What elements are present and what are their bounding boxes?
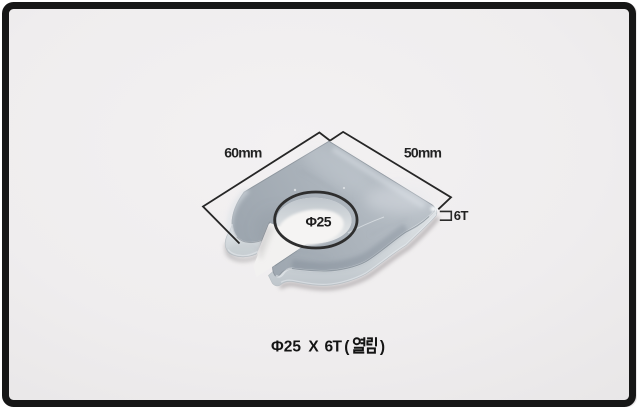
svg-text:Φ25: Φ25 <box>271 339 301 356</box>
svg-text:(: ( <box>344 339 350 356</box>
svg-text:6T: 6T <box>454 208 469 223</box>
svg-text:): ) <box>380 339 385 356</box>
svg-text:6T: 6T <box>325 339 343 356</box>
svg-text:X: X <box>308 339 319 356</box>
svg-text:60mm: 60mm <box>224 144 262 160</box>
svg-text:Φ25: Φ25 <box>306 213 332 229</box>
svg-text:50mm: 50mm <box>404 145 442 161</box>
